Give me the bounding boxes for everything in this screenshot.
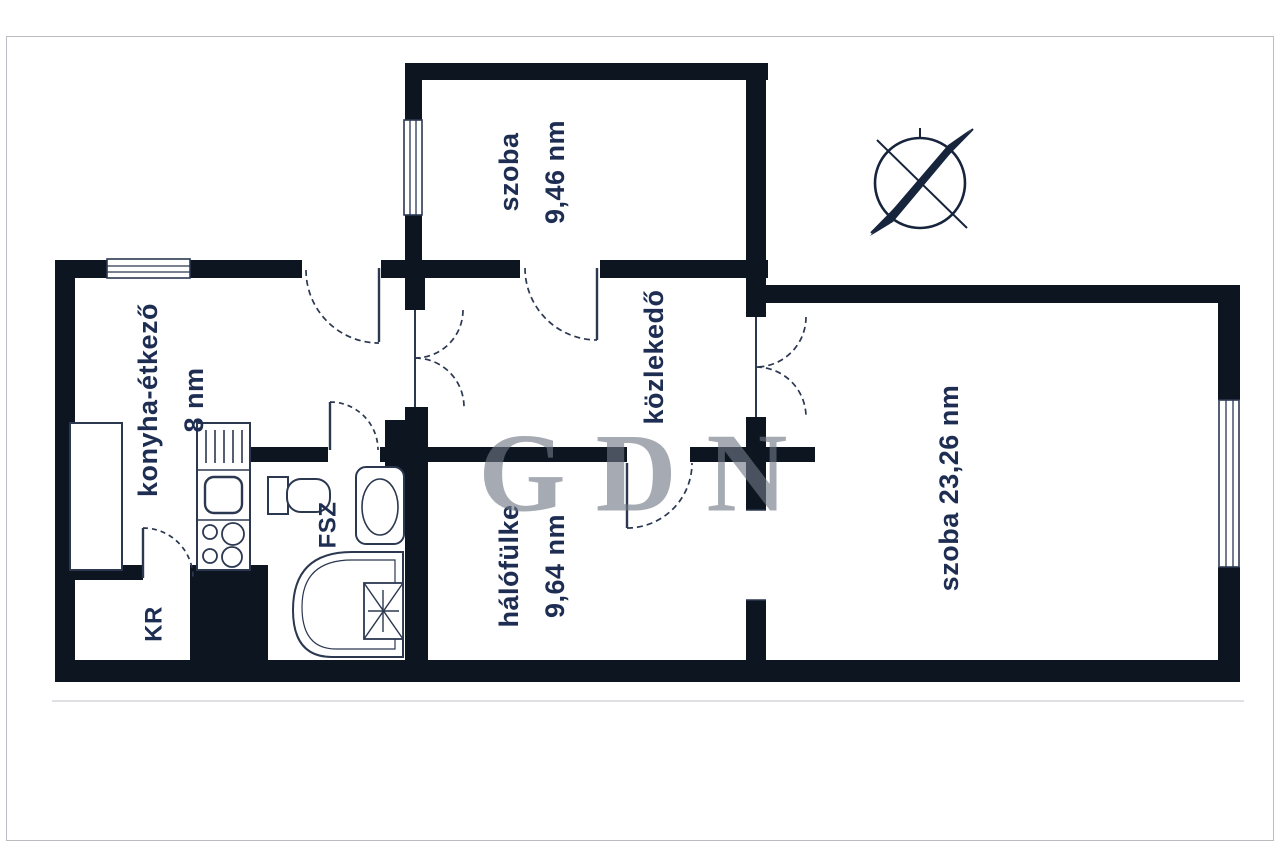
room-area: 23,26 nm: [934, 385, 964, 505]
drain-icon: [364, 583, 403, 639]
room-area: 9,46 nm: [533, 120, 579, 224]
wall-top-room-left-lower: [405, 215, 422, 265]
wall-kitchen-hall-upper: [405, 278, 425, 310]
wall-top-room-top: [405, 63, 768, 80]
double-door-kitchen-hall: [415, 310, 464, 407]
window-top-room-left: [404, 120, 422, 215]
label-hall: közlekedő: [632, 289, 678, 424]
door-pantry: [143, 528, 193, 578]
wall-band-b: [190, 260, 302, 278]
room-name: konyha-étkező: [126, 303, 172, 497]
room-name: szoba: [934, 512, 964, 591]
wall-band-c: [381, 260, 520, 278]
door-bathroom: [330, 402, 378, 450]
wall-hall-bigroom-upper: [746, 303, 766, 317]
wall-big-room-right-upper: [1218, 285, 1240, 400]
window-kitchen-top: [107, 259, 190, 278]
bathtub-icon: [293, 552, 403, 657]
label-bathroom: FSZ: [309, 502, 350, 549]
window-big-room-right: [1219, 400, 1239, 567]
compass-needle: [870, 129, 971, 236]
compass-rose-icon: [870, 128, 973, 236]
watermark: GDN: [479, 410, 818, 539]
room-name: közlekedő: [632, 289, 678, 424]
label-pantry: KR: [135, 606, 176, 642]
wall-big-room-top: [746, 285, 1240, 303]
room-name: FSZ: [309, 502, 350, 549]
wall-fsz-top-left: [248, 447, 328, 462]
room-name: KR: [135, 606, 176, 642]
wall-block-pantry-bath: [190, 565, 268, 682]
kitchen-cabinet: [70, 423, 122, 570]
label-kitchen: konyha-étkező 8 nm: [126, 303, 218, 497]
room-name: szoba: [487, 120, 533, 224]
double-door-hall-big-room: [756, 317, 806, 417]
label-room-large: szoba 23,26 nm: [927, 385, 973, 592]
label-room-small: szoba 9,46 nm: [487, 120, 579, 224]
wall-band-d: [600, 260, 768, 278]
door-top-room: [525, 268, 597, 340]
bathroom-sink-icon: [356, 467, 404, 544]
door-entrance-kitchen: [306, 268, 379, 343]
room-name-area: szoba 23,26 nm: [927, 385, 973, 592]
wall-nook-bigroom-lower: [746, 600, 766, 660]
wall-top-room-left-upper: [405, 63, 422, 120]
room-area: 8 nm: [172, 303, 218, 497]
wall-top-room-right: [746, 63, 766, 317]
